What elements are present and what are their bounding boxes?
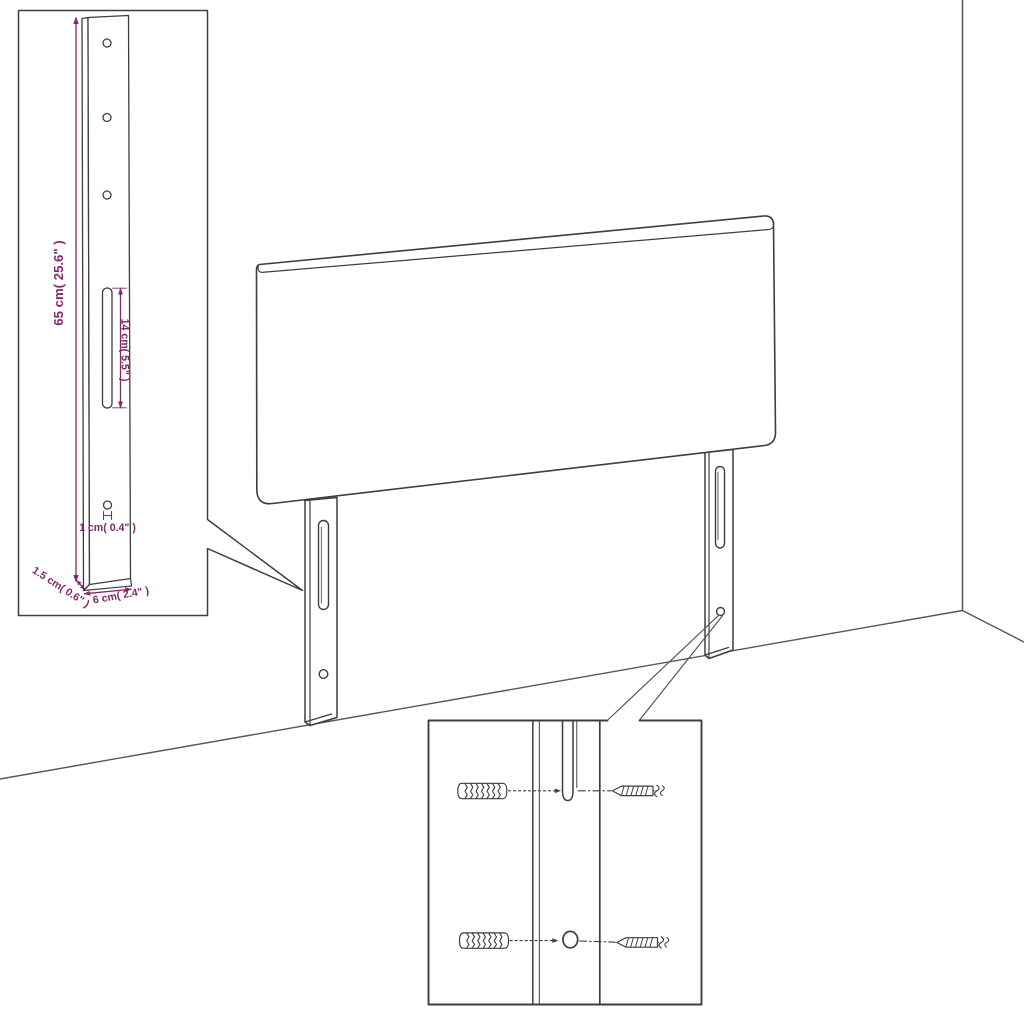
mounting-hole	[103, 191, 111, 199]
floor-line-left	[0, 611, 963, 780]
headboard	[257, 216, 776, 504]
adjustment-slot	[103, 288, 113, 408]
slot-dimension-label: 14 cm( 5.5" )	[119, 319, 131, 382]
mounting-detail-inset	[429, 721, 702, 1005]
alignment-arrowhead	[552, 938, 558, 943]
strip-slot	[563, 721, 574, 801]
alignment-arrowhead	[555, 789, 561, 794]
right-leg-slot	[716, 467, 725, 549]
assembly-diagram: 65 cm( 25.6" ) 14 cm( 5.5" ) 1 cm( 0.4" …	[0, 0, 1024, 1024]
headboard-left-leg	[305, 498, 337, 726]
mounting-hole	[104, 501, 112, 509]
headboard-panel	[257, 216, 776, 504]
assembly-diagram-page: 65 cm( 25.6" ) 14 cm( 5.5" ) 1 cm( 0.4" …	[0, 0, 1024, 1024]
callout-line	[608, 615, 719, 720]
hole-dimension-label: 1 cm( 0.4" )	[79, 522, 136, 534]
wall-plug-icon	[460, 933, 509, 948]
height-dimension-label: 65 cm( 25.6" )	[51, 240, 66, 325]
callout-line	[640, 616, 723, 720]
strip-screw-hole	[563, 931, 578, 947]
floor-line-right	[963, 611, 1024, 643]
leg-strip-detail	[533, 721, 600, 1005]
right-leg-screw-hole	[717, 608, 725, 616]
left-leg-screw-hole	[319, 670, 328, 679]
mounting-hole	[103, 39, 111, 47]
left-leg-slot	[319, 521, 329, 610]
screw-icon	[612, 785, 664, 796]
detail-box-outline	[429, 721, 702, 1005]
wall-plug-icon	[458, 783, 507, 798]
alignment-dashdot-line	[580, 941, 616, 942]
mounting-hole	[103, 114, 111, 122]
screw-icon	[617, 937, 669, 948]
inset-leg-drawing	[82, 16, 132, 591]
headboard-right-leg	[705, 450, 733, 659]
